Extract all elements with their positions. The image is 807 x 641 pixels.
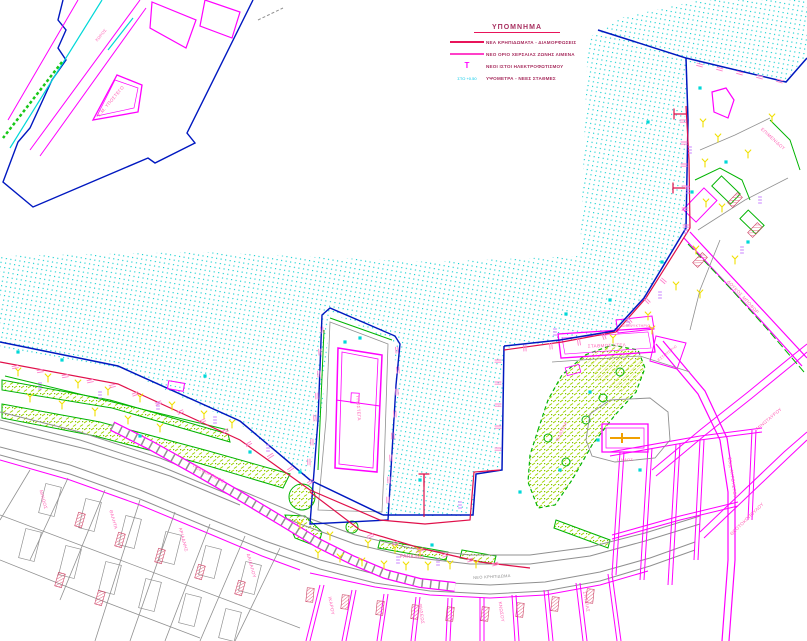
tr-gray-1 bbox=[700, 118, 770, 150]
street-grid-3 bbox=[60, 490, 105, 600]
vm-symbol bbox=[659, 292, 662, 298]
street-v-7 bbox=[512, 595, 515, 641]
plot-7 bbox=[19, 529, 42, 562]
tl-gray-dash bbox=[258, 8, 283, 20]
building-hatched bbox=[446, 607, 454, 622]
legend: ΥΠΟΜΝΗΜΑ ΝΕΑ ΚΡΗΠΙΔΩΜΑΤΑ - ΔΙΑΜΟΡΦΩΣΕΙΣΝ… bbox=[448, 24, 586, 86]
lamp-symbol bbox=[769, 114, 775, 122]
street-v-10b bbox=[612, 574, 621, 641]
lamp-symbol bbox=[403, 562, 409, 570]
building-hatched bbox=[306, 588, 314, 603]
building-hatched bbox=[195, 564, 206, 579]
legend-item-3: ΣΤΟ +0.50ΥΨΟΜΕΤΡΑ - ΝΕΕΣ ΣΤΑΘΜΕΣ bbox=[448, 74, 586, 82]
sq-symbol bbox=[343, 340, 346, 343]
avenue-4b bbox=[704, 440, 807, 538]
lamp-symbol bbox=[425, 562, 431, 570]
lamp-symbol bbox=[315, 550, 321, 558]
legend-sample-text: ΣΤΟ +0.50 bbox=[448, 76, 486, 81]
map-label: ΙΚΑΡΟΥ bbox=[327, 596, 335, 615]
lamp-symbol bbox=[169, 402, 175, 410]
lamp-symbol bbox=[719, 204, 725, 212]
street-grid-4 bbox=[95, 500, 140, 641]
map-label: ΕΠΙΜΕΝΙΔΟΥ bbox=[760, 127, 786, 151]
building-hatched bbox=[75, 512, 86, 527]
lamp-symbol bbox=[125, 416, 131, 424]
tl-road-cyan-2 bbox=[108, 18, 133, 50]
plot-9 bbox=[99, 562, 122, 595]
building-hatched bbox=[341, 595, 349, 610]
tick-symbol bbox=[109, 384, 115, 388]
legend-item-0: ΝΕΑ ΚΡΗΠΙΔΩΜΑΤΑ - ΔΙΑΜΟΡΦΩΣΕΙΣ bbox=[448, 38, 586, 46]
map-label: Σ.Μ. ΥΠΟΣΤΕΓΟ bbox=[97, 85, 126, 118]
tl-road-mag-1 bbox=[8, 0, 78, 120]
street-v-9 bbox=[576, 583, 583, 641]
street-grid-2 bbox=[30, 478, 68, 560]
br-v-3b bbox=[672, 444, 680, 585]
tick-symbol bbox=[12, 365, 18, 368]
lamp-symbol bbox=[715, 134, 721, 142]
br-v-1b bbox=[616, 452, 624, 575]
lamp-symbol bbox=[700, 119, 706, 127]
avenue-2a bbox=[656, 344, 728, 641]
map-label: Ι. ΝΑΟΣ bbox=[617, 457, 634, 462]
building-hatched bbox=[95, 590, 106, 605]
legend-label: ΝΕΟ ΟΡΙΟ ΧΕΡΣΑΙΑΣ ΖΩΝΗΣ ΛΙΜΕΝΑ bbox=[486, 52, 575, 57]
lamp-symbol bbox=[137, 394, 143, 402]
map-label: ΔΑΙΔΑΛΟΥ bbox=[246, 553, 257, 578]
sq-symbol bbox=[430, 543, 433, 546]
br-v-5 bbox=[748, 430, 752, 520]
plot-11 bbox=[179, 594, 202, 627]
building-hatched bbox=[516, 603, 524, 618]
map-label: ΑΡΙΑΔΝΗΣ bbox=[178, 527, 189, 552]
sq-symbol bbox=[358, 336, 361, 339]
tl-road-cyan-1 bbox=[10, 0, 102, 148]
sq-symbol bbox=[564, 312, 567, 315]
map-label: ΔΟΥΚΟΣ ΜΠΟΦΩΡ bbox=[726, 279, 760, 315]
map-label: ΜΙΝΩΤΑΥΡΟΥ bbox=[755, 407, 783, 431]
sq-symbol bbox=[698, 86, 701, 89]
lamp-symbol bbox=[447, 561, 453, 569]
boundary-topleft bbox=[3, 0, 253, 207]
sq-symbol bbox=[298, 470, 301, 473]
legend-sample-line bbox=[448, 41, 486, 43]
building-hatched bbox=[115, 532, 126, 547]
tick-symbol bbox=[288, 466, 294, 471]
lamp-symbol bbox=[703, 199, 709, 207]
sq-symbol bbox=[608, 298, 611, 301]
map-label: ΘΑΛΗΤΑ bbox=[108, 509, 118, 530]
avenue-1a bbox=[690, 232, 807, 358]
lamp-symbol bbox=[673, 282, 679, 290]
tr-green-1 bbox=[695, 168, 750, 200]
sq-symbol bbox=[418, 478, 421, 481]
map-label: 25ης ΑΥΓΟΥΣΤΟΥ bbox=[727, 457, 738, 498]
tl-bldg-3 bbox=[200, 0, 240, 38]
tick-symbol bbox=[524, 345, 526, 351]
sq-symbol bbox=[638, 468, 641, 471]
sq-symbol bbox=[138, 434, 141, 437]
br-cross-2 bbox=[610, 428, 762, 452]
map-label: ΧΩΡΟΣ bbox=[94, 27, 108, 42]
lamp-symbol bbox=[745, 150, 751, 158]
legend-item-2: TΝΕΟΙ ΙΣΤΟΙ ΗΛΕΚΤΡΟΦΩΤΙΣΜΟΥ bbox=[448, 62, 586, 70]
lamp-symbol bbox=[201, 411, 207, 419]
map-label: ΚΝΩΣΟΥ bbox=[498, 601, 506, 622]
tl-road-mag-3 bbox=[40, 8, 146, 156]
legend-title: ΥΠΟΜΝΗΜΑ bbox=[474, 24, 560, 33]
plot-12 bbox=[219, 609, 242, 641]
map-label: ΑΝΑΨΥΚΤΗΡΙΟ bbox=[622, 324, 651, 328]
lamp-symbol bbox=[27, 394, 33, 402]
sq-symbol bbox=[16, 350, 19, 353]
tl-road-mag-2 bbox=[30, 0, 140, 150]
harbor-site-plan: Σ.Μ. ΥΠΟΣΤΕΓΟΧΩΡΟΣΠΕΖΟΔΡΟΜΟΣPARKINGΣΤΑΘΜ… bbox=[0, 0, 807, 641]
br-v-1 bbox=[612, 452, 620, 575]
sq-symbol bbox=[690, 190, 693, 193]
vm-symbol bbox=[759, 197, 762, 203]
br-v-2b bbox=[644, 448, 652, 580]
tick-symbol bbox=[87, 379, 93, 382]
lamp-symbol bbox=[15, 368, 21, 376]
building-hatched bbox=[235, 580, 246, 595]
map-label: ΝΕΟ ΚΡΗΠΙΔΩΜΑ bbox=[473, 573, 511, 580]
sq-symbol bbox=[724, 160, 727, 163]
lamp-symbol bbox=[75, 380, 81, 388]
map-label: PARKING bbox=[400, 554, 424, 560]
tick-symbol bbox=[577, 339, 580, 345]
street-grid-5 bbox=[130, 512, 175, 641]
building-hatched bbox=[551, 597, 559, 612]
building-hatched bbox=[693, 253, 708, 268]
tick-symbol bbox=[245, 442, 251, 447]
legend-rows: ΝΕΑ ΚΡΗΠΙΔΩΜΑΤΑ - ΔΙΑΜΟΡΦΩΣΕΙΣΝΕΟ ΟΡΙΟ Χ… bbox=[448, 38, 586, 82]
legend-item-1: ΝΕΟ ΟΡΙΟ ΧΕΡΣΑΙΑΣ ΖΩΝΗΣ ΛΙΜΕΝΑ bbox=[448, 50, 586, 58]
building-hatched bbox=[376, 601, 384, 616]
tl-green-dash bbox=[3, 62, 62, 138]
legend-label: ΝΕΟΙ ΙΣΤΟΙ ΗΛΕΚΤΡΟΦΩΤΙΣΜΟΥ bbox=[486, 64, 563, 69]
tick-symbol bbox=[37, 369, 43, 372]
building-hatched bbox=[411, 605, 419, 620]
coastal-road-line-3 bbox=[0, 447, 695, 585]
lamp-symbol bbox=[59, 401, 65, 409]
street-v-7b bbox=[516, 595, 519, 641]
lamp-symbol bbox=[157, 424, 163, 432]
lamp-symbol bbox=[229, 420, 235, 428]
vm-symbol bbox=[214, 417, 217, 423]
tr-green-street bbox=[688, 244, 804, 372]
sq-symbol bbox=[746, 240, 749, 243]
lamp-symbol bbox=[702, 159, 708, 167]
sq-symbol bbox=[660, 260, 663, 263]
br-v-2 bbox=[640, 448, 648, 580]
site-plan-canvas: Σ.Μ. ΥΠΟΣΤΕΓΟΧΩΡΟΣΠΕΖΟΔΡΟΜΟΣPARKINGΣΤΑΘΜ… bbox=[0, 0, 807, 641]
sq-symbol bbox=[518, 490, 521, 493]
lamp-symbol bbox=[732, 256, 738, 264]
tick-symbol bbox=[199, 419, 205, 424]
building-hatched bbox=[748, 223, 763, 238]
building-hatched bbox=[155, 548, 166, 563]
sq-symbol bbox=[558, 468, 561, 471]
street-grid-1 bbox=[0, 470, 30, 520]
tr-gray-3 bbox=[690, 240, 720, 330]
map-label: ΥΠΟΣΤΕΓΑ bbox=[355, 395, 362, 421]
sq-symbol bbox=[646, 120, 649, 123]
tick-symbol bbox=[267, 453, 273, 458]
street-v-10 bbox=[608, 574, 617, 641]
vm-symbol bbox=[741, 247, 744, 253]
legend-label: ΝΕΑ ΚΡΗΠΙΔΩΜΑΤΑ - ΔΙΑΜΟΡΦΩΣΕΙΣ bbox=[486, 40, 576, 45]
building-hatched bbox=[728, 193, 743, 208]
sq-symbol bbox=[588, 390, 591, 393]
building-hatched bbox=[481, 607, 489, 622]
legend-label: ΥΨΟΜΕΤΡΑ - ΝΕΕΣ ΣΤΑΘΜΕΣ bbox=[486, 76, 556, 81]
legend-sample-line bbox=[448, 53, 486, 55]
tr-blob-mag bbox=[712, 88, 734, 118]
legend-sample-tee: T bbox=[448, 63, 486, 69]
lamp-symbol bbox=[92, 408, 98, 416]
sq-symbol bbox=[60, 358, 63, 361]
lamp-symbol bbox=[45, 374, 51, 382]
tick-symbol bbox=[62, 374, 68, 377]
map-label: ΘΗΣΕΩΣ bbox=[418, 603, 426, 624]
sq-symbol bbox=[596, 438, 599, 441]
tl-bldg-2 bbox=[150, 2, 196, 48]
sq-symbol bbox=[203, 374, 206, 377]
vm-symbol bbox=[99, 392, 102, 398]
tick-symbol bbox=[660, 278, 666, 284]
sq-symbol bbox=[248, 450, 251, 453]
